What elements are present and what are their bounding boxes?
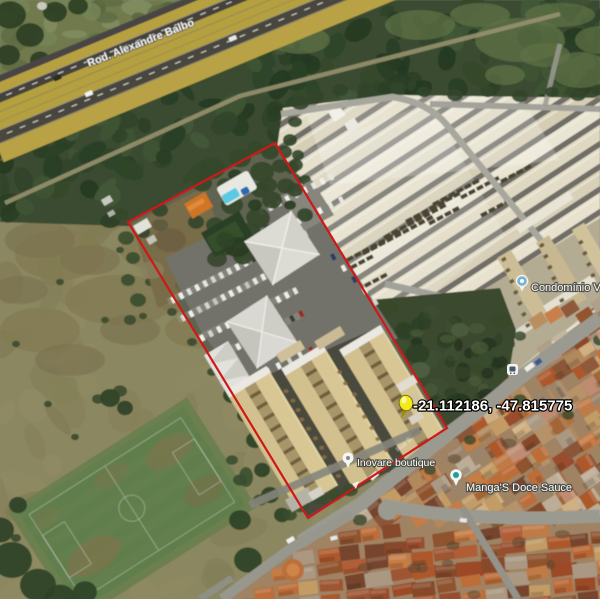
svg-text:Inovare boutique: Inovare boutique: [357, 457, 435, 469]
svg-text:Condomínio Vil: Condomínio Vil: [531, 282, 600, 294]
svg-text:Manga'S Doce Sauce: Manga'S Doce Sauce: [466, 482, 572, 494]
svg-text:-21.112186, -47.815775: -21.112186, -47.815775: [413, 398, 572, 415]
